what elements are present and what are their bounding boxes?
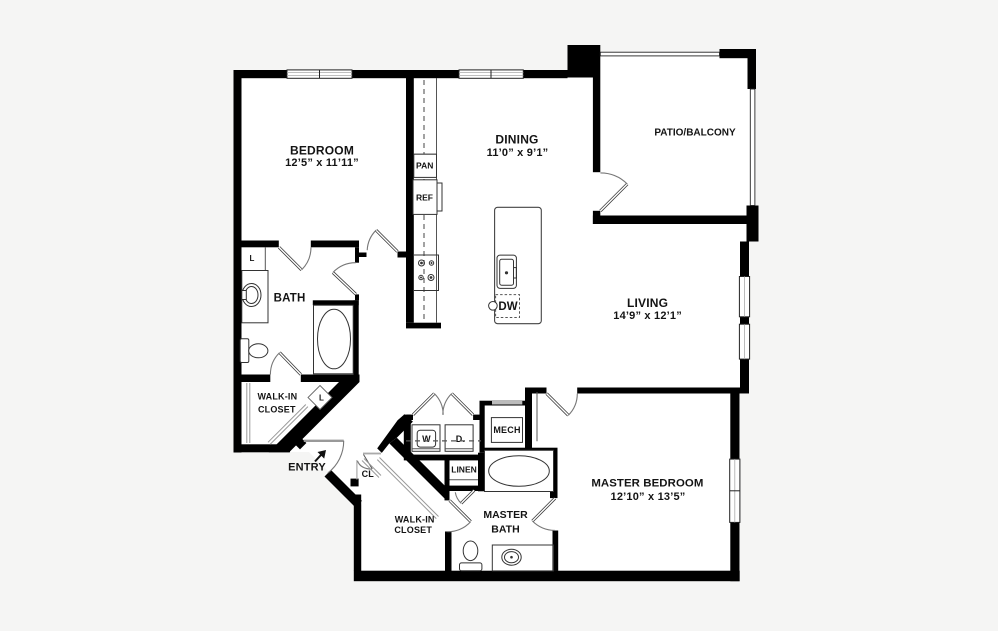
svg-text:W: W [422,434,431,444]
svg-text:BEDROOM: BEDROOM [290,144,354,158]
svg-text:LINEN: LINEN [451,465,477,475]
svg-text:11’0” x 9’1”: 11’0” x 9’1” [487,147,549,159]
svg-text:MASTER BEDROOM: MASTER BEDROOM [591,478,703,490]
svg-text:MASTER: MASTER [483,509,528,521]
svg-text:BATH: BATH [491,524,519,536]
svg-text:WALK-IN: WALK-IN [257,392,297,402]
svg-text:L: L [250,254,255,263]
svg-text:ENTRY: ENTRY [288,462,326,474]
svg-text:CLOSET: CLOSET [258,404,296,414]
svg-text:PAN: PAN [416,161,433,171]
svg-text:12’5” x 11’11”: 12’5” x 11’11” [285,157,359,169]
svg-text:D.: D. [456,434,465,444]
svg-text:12’10” x 13’5”: 12’10” x 13’5” [611,491,686,503]
svg-text:PATIO/BALCONY: PATIO/BALCONY [654,128,736,139]
svg-text:MECH: MECH [493,425,520,435]
svg-text:DW: DW [498,301,517,313]
svg-text:L: L [319,394,324,403]
svg-text:WALK-IN: WALK-IN [395,514,435,524]
svg-text:LIVING: LIVING [627,296,668,310]
svg-text:CL: CL [362,469,375,479]
svg-text:CLOSET: CLOSET [394,525,432,535]
svg-text:14’9” x 12’1”: 14’9” x 12’1” [613,310,682,322]
svg-text:DINING: DINING [495,133,538,147]
svg-text:REF: REF [416,193,433,203]
svg-text:BATH: BATH [274,293,306,305]
